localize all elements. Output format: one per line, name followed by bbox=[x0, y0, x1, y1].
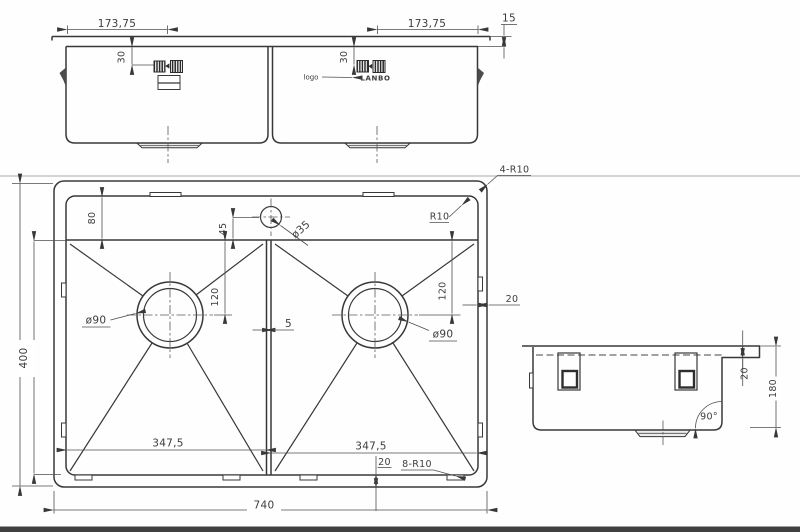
mounting-tab bbox=[363, 193, 394, 197]
dim-text: 30 bbox=[117, 51, 128, 64]
page-background bbox=[0, 0, 800, 532]
dim-text: 20 bbox=[378, 457, 391, 468]
clip-block bbox=[171, 61, 183, 73]
dim-text: 5 bbox=[285, 318, 292, 330]
clip-block bbox=[357, 61, 369, 73]
dim-text: 120 bbox=[438, 281, 449, 300]
dim-text: 347,5 bbox=[152, 438, 184, 450]
mounting-tab bbox=[478, 423, 483, 437]
mounting-tab bbox=[62, 423, 67, 437]
logo-leader bbox=[322, 77, 352, 78]
clip-block bbox=[154, 61, 165, 72]
dim-text: ø90 bbox=[433, 329, 454, 341]
dim-text: 8-R10 bbox=[402, 459, 432, 470]
left-clip-notch bbox=[530, 373, 534, 388]
dim-text: R10 bbox=[430, 212, 450, 223]
dim-text: 30 bbox=[339, 51, 350, 64]
dim-text: 90° bbox=[700, 412, 718, 423]
drawing-page: 173,75 173,75 30 30 logo bbox=[0, 0, 800, 532]
dim-text: 15 bbox=[502, 13, 516, 25]
brand-logo-text: LANBO bbox=[360, 75, 390, 83]
mounting-tab bbox=[478, 277, 483, 291]
mounting-tab bbox=[75, 475, 92, 480]
dim-text: 180 bbox=[768, 379, 779, 398]
dim-text: 80 bbox=[87, 212, 98, 225]
mounting-tab bbox=[223, 475, 240, 480]
dim-text: 4-R10 bbox=[500, 165, 530, 176]
mounting-tab bbox=[300, 475, 317, 480]
mounting-tab bbox=[150, 193, 181, 197]
dim-text: 20 bbox=[740, 367, 751, 380]
clip-block bbox=[373, 61, 385, 73]
bottom-window-band bbox=[0, 527, 800, 532]
dim-text: 20 bbox=[506, 294, 519, 305]
left-clip-symbol bbox=[154, 61, 183, 90]
dim-text: 173,75 bbox=[98, 18, 137, 30]
logo-label: logo bbox=[304, 74, 319, 82]
dim-text: 45 bbox=[218, 223, 229, 236]
dim-text: 347,5 bbox=[355, 441, 387, 453]
dim-text: ø90 bbox=[86, 315, 107, 327]
dim-text: 120 bbox=[210, 287, 221, 306]
dim-text: 400 bbox=[18, 348, 30, 369]
sink-technical-drawing: 173,75 173,75 30 30 logo bbox=[0, 0, 800, 532]
dim-text: 740 bbox=[254, 500, 275, 512]
dim-text: 173,75 bbox=[408, 18, 447, 30]
mounting-tab bbox=[62, 283, 67, 297]
